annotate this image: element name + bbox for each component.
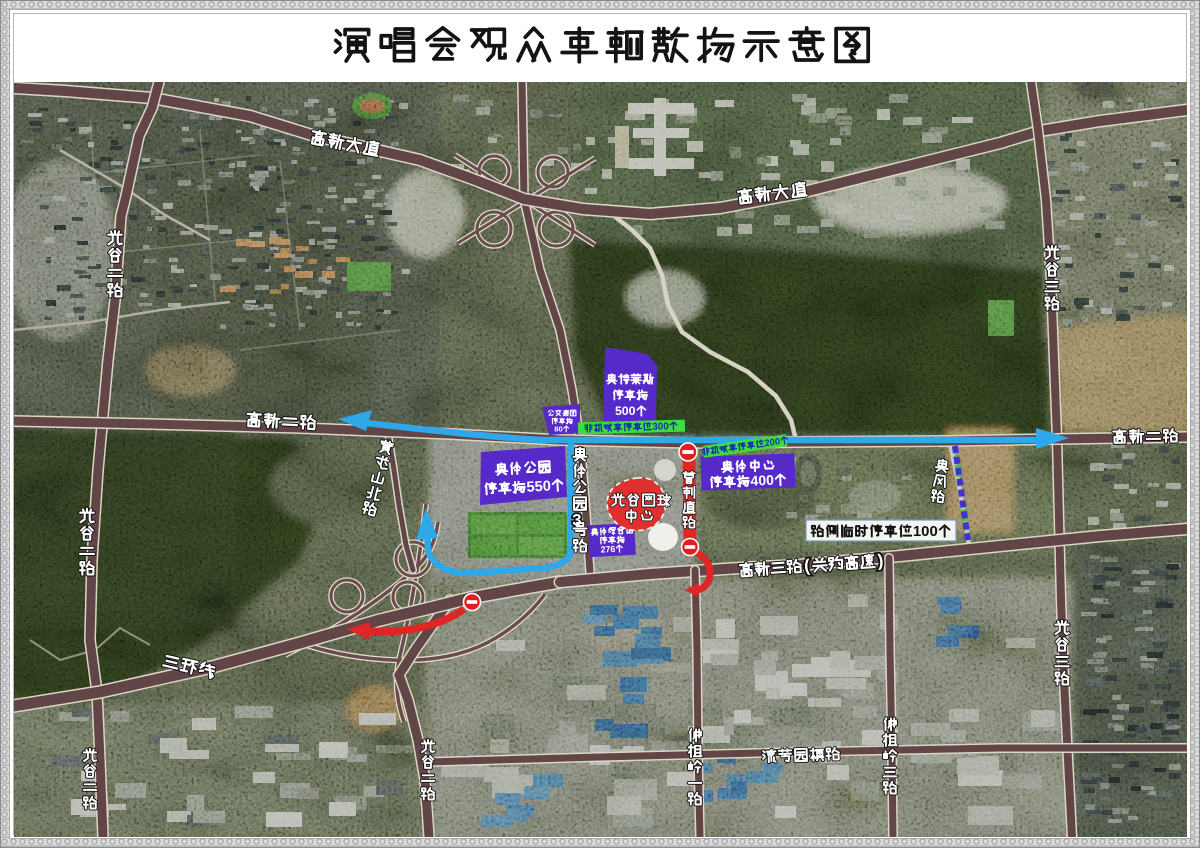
- svg-text:0: 0: [766, 472, 775, 488]
- svg-text:1: 1: [913, 524, 921, 540]
- svg-text:0: 0: [921, 524, 929, 540]
- svg-text:0: 0: [929, 524, 937, 540]
- svg-text:0: 0: [542, 479, 551, 495]
- svg-text:0: 0: [558, 425, 562, 434]
- svg-text:6: 6: [610, 544, 616, 554]
- svg-text:0: 0: [663, 421, 669, 432]
- svg-text:0: 0: [629, 404, 636, 418]
